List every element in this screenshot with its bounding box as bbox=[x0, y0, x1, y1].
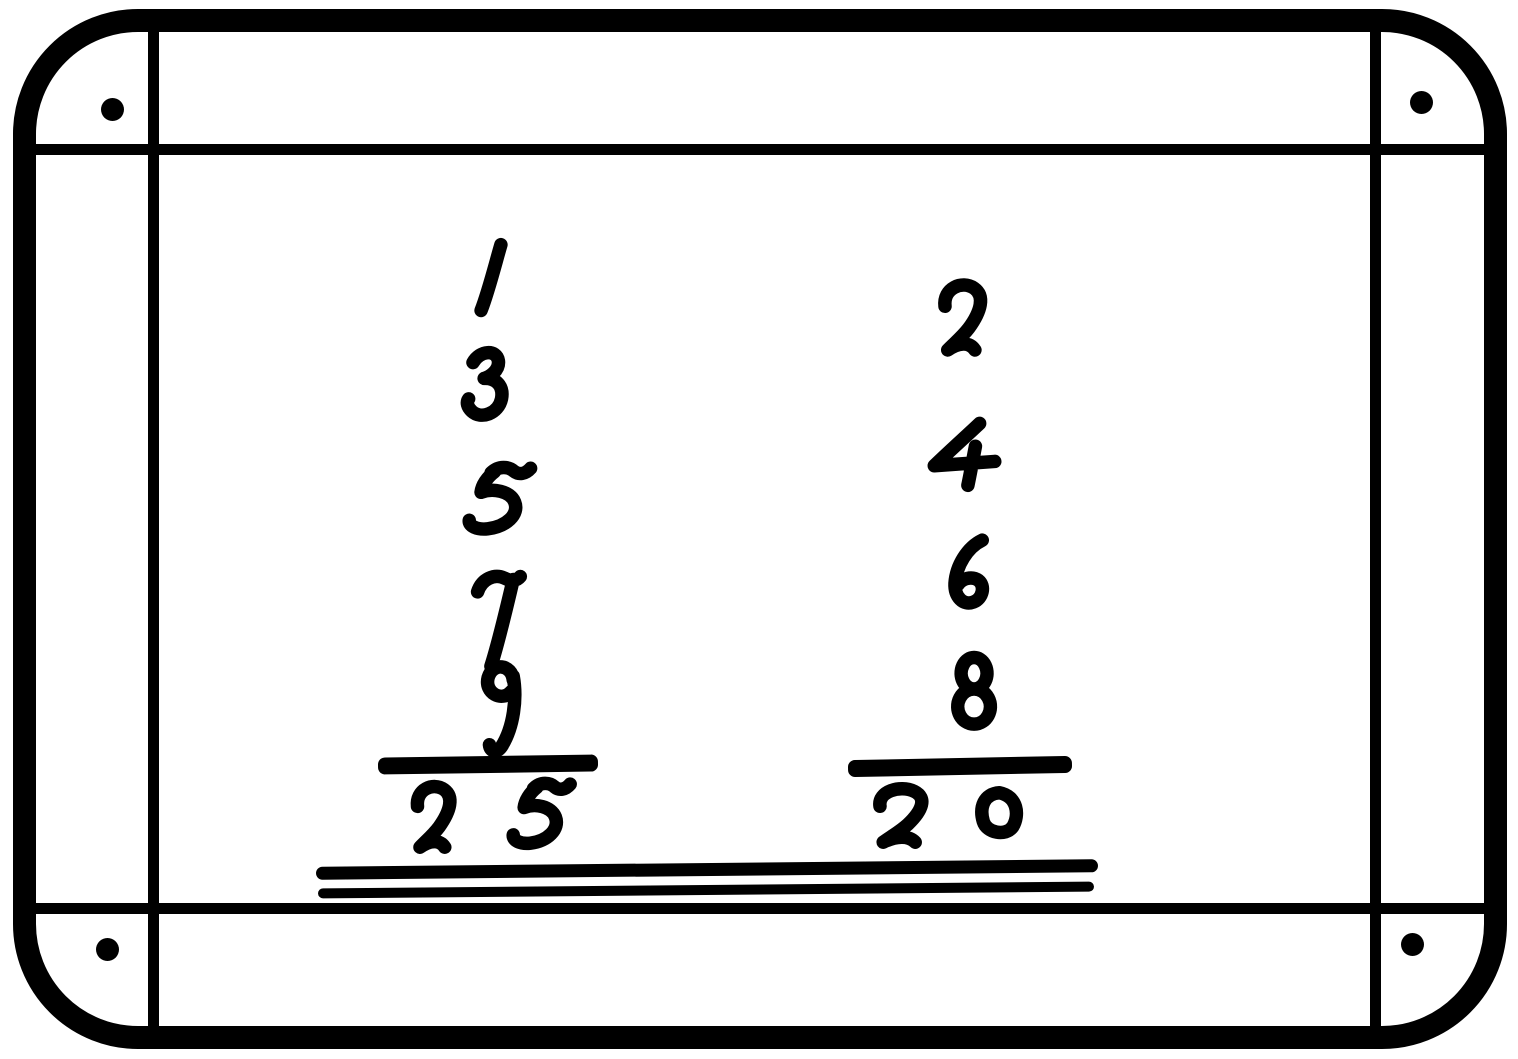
addend-digit-4 bbox=[920, 418, 1004, 494]
addend-digit-2 bbox=[928, 278, 996, 368]
addend-digit-8 bbox=[940, 650, 1008, 738]
addend-digit-5 bbox=[455, 462, 539, 542]
sum-digit-5 bbox=[500, 778, 578, 856]
illustration-canvas bbox=[0, 0, 1518, 1059]
corner-nail-icon bbox=[1401, 933, 1424, 956]
double-underline-bottom bbox=[318, 882, 1094, 899]
sum-digit-2 bbox=[860, 783, 940, 857]
sum-digit-0 bbox=[963, 787, 1033, 849]
addend-digit-9 bbox=[467, 658, 533, 760]
slate-frame bbox=[13, 9, 1507, 1049]
frame-inner-line-top bbox=[36, 144, 1484, 155]
addend-digit-6 bbox=[937, 533, 999, 617]
addend-digit-7 bbox=[465, 570, 535, 672]
corner-nail-icon bbox=[1410, 91, 1433, 114]
sum-line-right-column bbox=[848, 756, 1072, 777]
addend-digit-3 bbox=[455, 345, 517, 427]
addend-digit-1 bbox=[460, 238, 522, 316]
corner-nail-icon bbox=[96, 938, 119, 961]
sum-digit-2 bbox=[402, 780, 464, 864]
frame-inner-line-bottom bbox=[36, 903, 1484, 914]
corner-nail-icon bbox=[101, 98, 124, 121]
frame-inner-line-right bbox=[1370, 32, 1381, 1026]
frame-inner-line-left bbox=[148, 32, 159, 1026]
